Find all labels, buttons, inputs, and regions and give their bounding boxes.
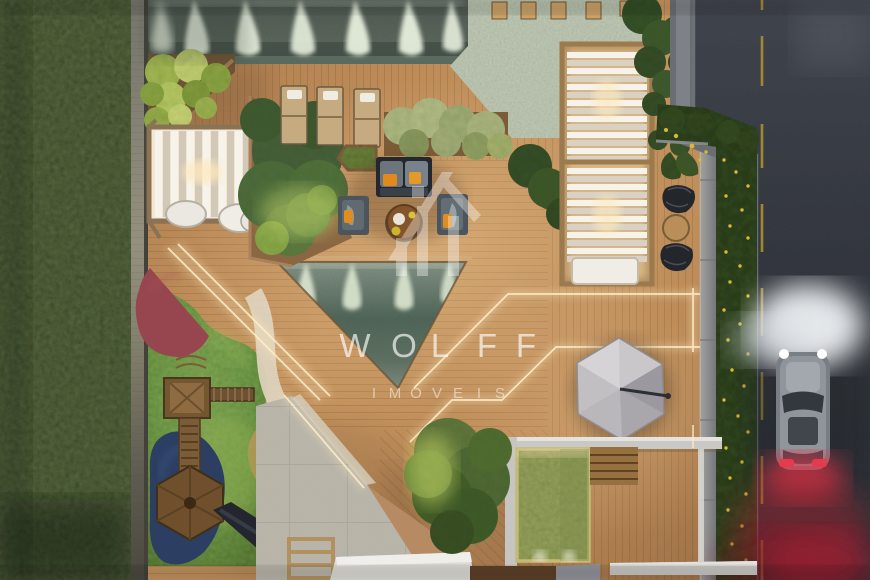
svg-text:I: I	[372, 385, 376, 402]
svg-text:M: M	[389, 385, 402, 402]
svg-text:I: I	[477, 385, 481, 402]
svg-text:S: S	[495, 385, 505, 402]
svg-text:E: E	[453, 385, 463, 402]
svg-text:W: W	[339, 327, 371, 364]
svg-text:O: O	[391, 327, 417, 364]
svg-text:L: L	[431, 327, 449, 364]
svg-text:V: V	[432, 385, 442, 402]
svg-text:F: F	[516, 327, 536, 364]
svg-text:Ó: Ó	[410, 385, 422, 402]
svg-text:F: F	[477, 327, 497, 364]
